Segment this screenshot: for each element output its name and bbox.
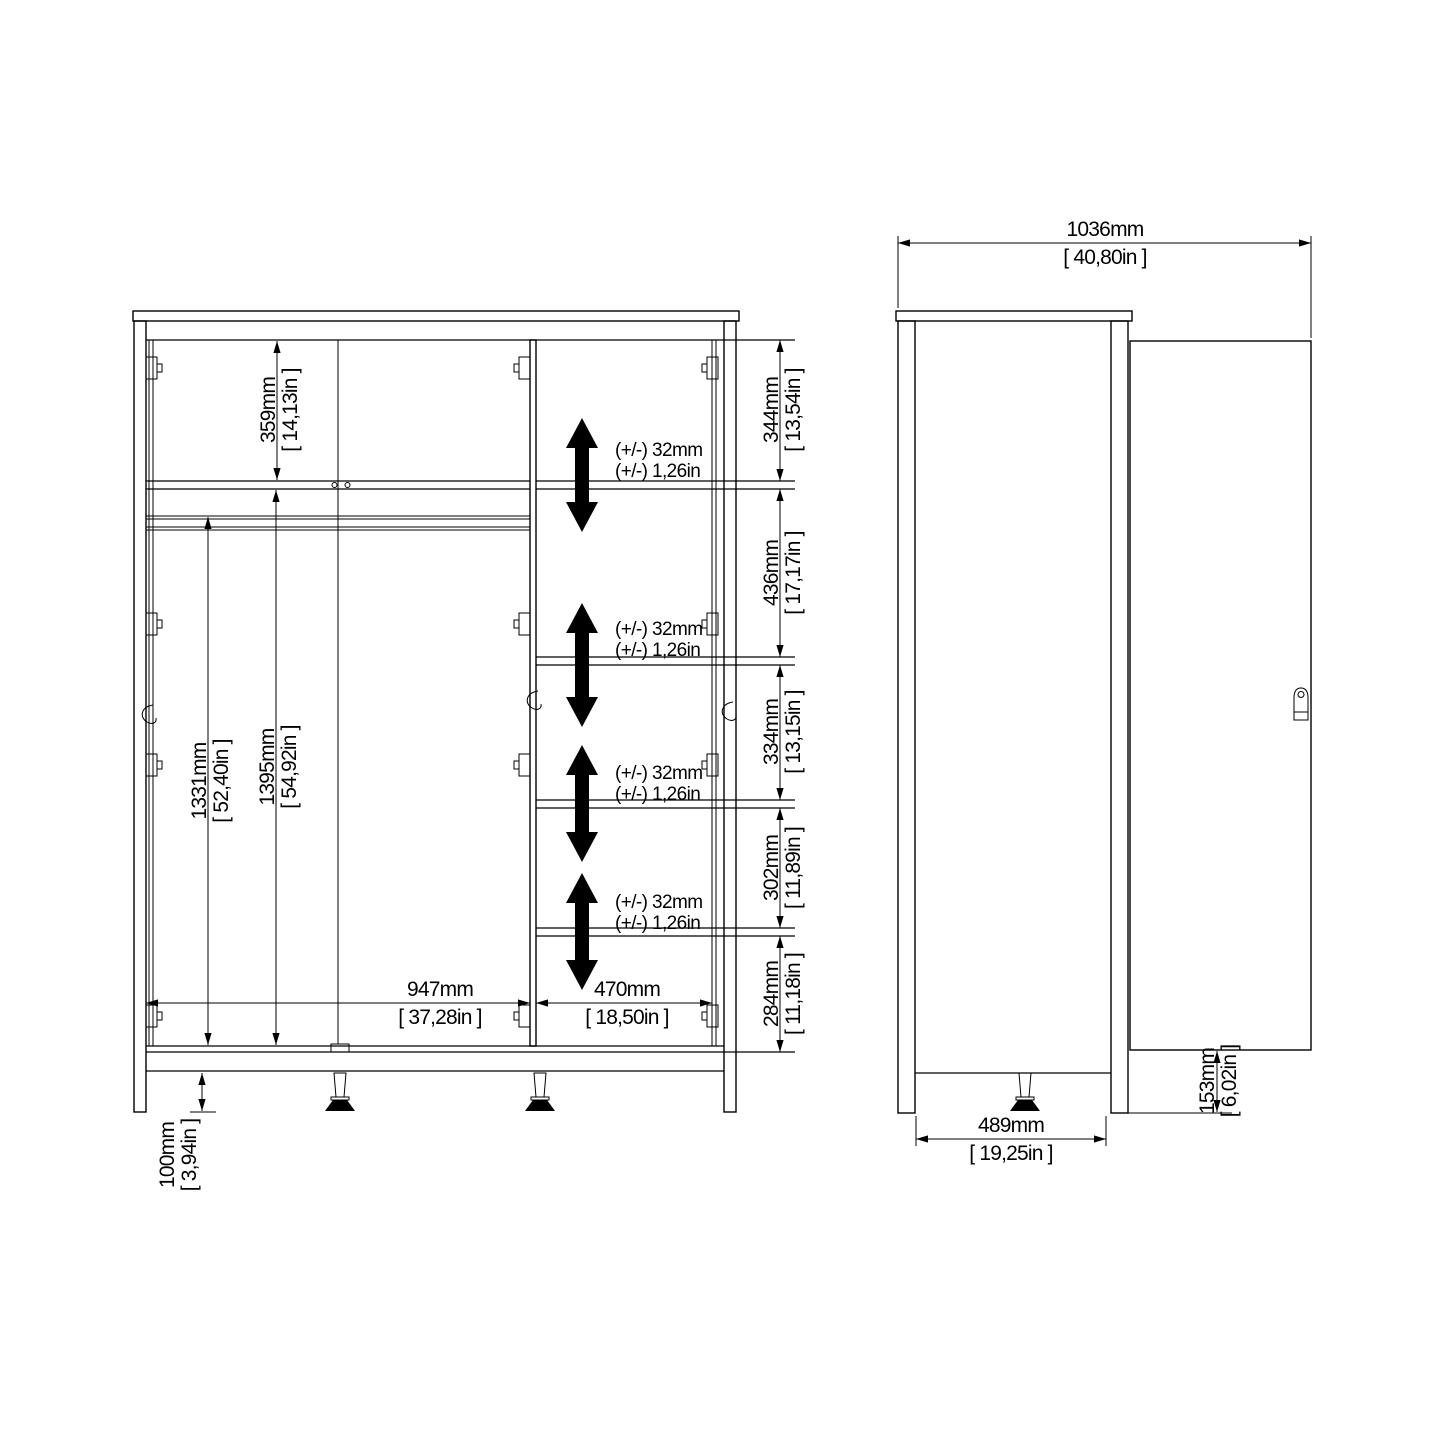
front-dimensions: 359mm [ 14,13in ] 1395mm [ 54,92in ] 133… [146, 340, 805, 1191]
side-back-panel [898, 321, 915, 1113]
dim-334-in: [ 13,15in ] [782, 690, 805, 773]
center-bottom-connector [331, 1044, 349, 1052]
dim-470-mm: 470mm [594, 978, 660, 1001]
front-left-side-panel [134, 321, 146, 1112]
dim-1395-in: [ 54,92in ] [278, 725, 301, 808]
dim-284-in: [ 11,18in ] [782, 953, 805, 1035]
dim-1395: 1395mm [ 54,92in ] [256, 490, 301, 1045]
side-dimensions: 1036mm [ 40,80in ] 489mm [ 19,25in ] 153… [898, 218, 1311, 1165]
shelf-pin [332, 483, 337, 488]
dim-153-mm: 153mm [1196, 1048, 1219, 1114]
dim-1331-mm: 1331mm [188, 742, 211, 819]
adjust-label-mm: (+/-) 32mm [615, 619, 702, 640]
dim-153-in: [ 6,02in ] [1218, 1045, 1241, 1118]
dim-100-mm: 100mm [156, 1122, 179, 1188]
side-view [896, 311, 1311, 1113]
dim-947-in: [ 37,28in ] [398, 1006, 481, 1029]
hinge [146, 357, 162, 379]
dim-302-in: [ 11,89in ] [782, 827, 805, 909]
dim-436-in: [ 17,17in ] [782, 531, 805, 614]
dim-100: 100mm [ 3,94in ] [156, 1073, 216, 1191]
middle-divider-panel [530, 340, 536, 1046]
front-leg [525, 1073, 555, 1111]
open-door-panel [1130, 341, 1311, 1050]
dim-1036: 1036mm [ 40,80in ] [898, 218, 1311, 338]
shelf-pin [345, 483, 350, 488]
door-knob [1294, 688, 1308, 720]
dim-489-in: [ 19,25in ] [969, 1142, 1052, 1165]
hinge [514, 754, 530, 776]
front-top-panel [133, 311, 739, 321]
side-top-panel [896, 311, 1132, 321]
adjust-label-in: (+/-) 1,26in [615, 784, 700, 805]
dim-334-mm: 334mm [760, 699, 783, 765]
door-handle-icon [527, 691, 541, 709]
dim-489-mm: 489mm [978, 1114, 1044, 1137]
dim-1036-mm: 1036mm [1067, 218, 1144, 241]
dim-153: 153mm [ 6,02in ] [1128, 1045, 1241, 1118]
side-leg [1010, 1073, 1040, 1111]
adjust-label-in: (+/-) 1,26in [615, 461, 700, 482]
dim-100-in: [ 3,94in ] [178, 1119, 201, 1192]
hinge [514, 1005, 530, 1027]
dim-1331: 1331mm [ 52,40in ] [188, 517, 233, 1045]
wardrobe-dimension-drawing: 359mm [ 14,13in ] 1395mm [ 54,92in ] 133… [0, 0, 1445, 1445]
dim-344-mm: 344mm [760, 377, 783, 443]
adjust-label-in: (+/-) 1,26in [615, 913, 700, 934]
dim-284-mm: 284mm [760, 961, 783, 1027]
adjust-arrow-icon [566, 873, 598, 990]
dim-436-mm: 436mm [760, 540, 783, 606]
front-right-side-panel [724, 321, 736, 1112]
dim-489: 489mm [ 19,25in ] [916, 1114, 1106, 1165]
adjust-arrow-icon [566, 418, 598, 532]
technical-drawing-page: 359mm [ 14,13in ] 1395mm [ 54,92in ] 133… [0, 0, 1445, 1445]
dim-chain-right: 344mm [ 13,54in ] 436mm [ 17,17in ] 334m… [760, 340, 805, 1052]
hinge [514, 613, 530, 635]
dim-359: 359mm [ 14,13in ] [257, 341, 302, 480]
adjust-label-mm: (+/-) 32mm [615, 892, 702, 913]
dim-470: 470mm [ 18,50in ] [536, 978, 712, 1029]
adjust-label-mm: (+/-) 32mm [615, 440, 702, 461]
dim-1036-in: [ 40,80in ] [1063, 246, 1146, 269]
adjust-arrow-icon [566, 745, 598, 862]
dim-1395-mm: 1395mm [256, 728, 279, 805]
dim-359-mm: 359mm [257, 377, 280, 443]
adjust-label-in: (+/-) 1,26in [615, 640, 700, 661]
dim-302-mm: 302mm [760, 835, 783, 901]
shelf-adjust-annotations: (+/-) 32mm (+/-) 1,26in (+/-) 32mm (+/-)… [566, 418, 702, 990]
dim-359-in: [ 14,13in ] [279, 368, 302, 451]
dim-1331-in: [ 52,40in ] [210, 739, 233, 822]
side-front-edge [1111, 321, 1128, 1113]
dim-344-in: [ 13,54in ] [782, 368, 805, 451]
front-leg [325, 1073, 355, 1111]
hinge [514, 357, 530, 379]
hinge [146, 613, 162, 635]
dim-470-in: [ 18,50in ] [585, 1006, 668, 1029]
hinge [146, 754, 162, 776]
adjust-label-mm: (+/-) 32mm [615, 763, 702, 784]
dim-947-mm: 947mm [407, 978, 473, 1001]
hinge [146, 1005, 162, 1027]
